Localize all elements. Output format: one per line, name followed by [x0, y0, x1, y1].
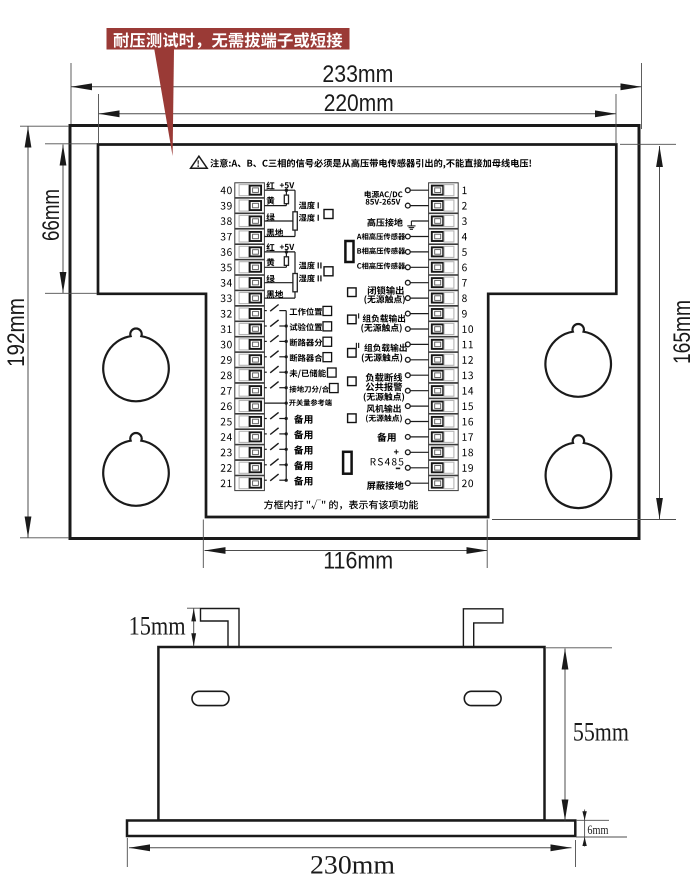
svg-text:230mm: 230mm [310, 851, 395, 880]
svg-text:66mm: 66mm [38, 189, 65, 241]
svg-text:220mm: 220mm [324, 90, 394, 117]
svg-text:116mm: 116mm [323, 548, 393, 575]
svg-text:55mm: 55mm [573, 718, 629, 747]
svg-text:165mm: 165mm [669, 300, 696, 364]
svg-text:6mm: 6mm [587, 822, 608, 837]
svg-text:233mm: 233mm [322, 61, 393, 88]
svg-text:15mm: 15mm [129, 612, 186, 641]
svg-text:192mm: 192mm [3, 298, 30, 367]
